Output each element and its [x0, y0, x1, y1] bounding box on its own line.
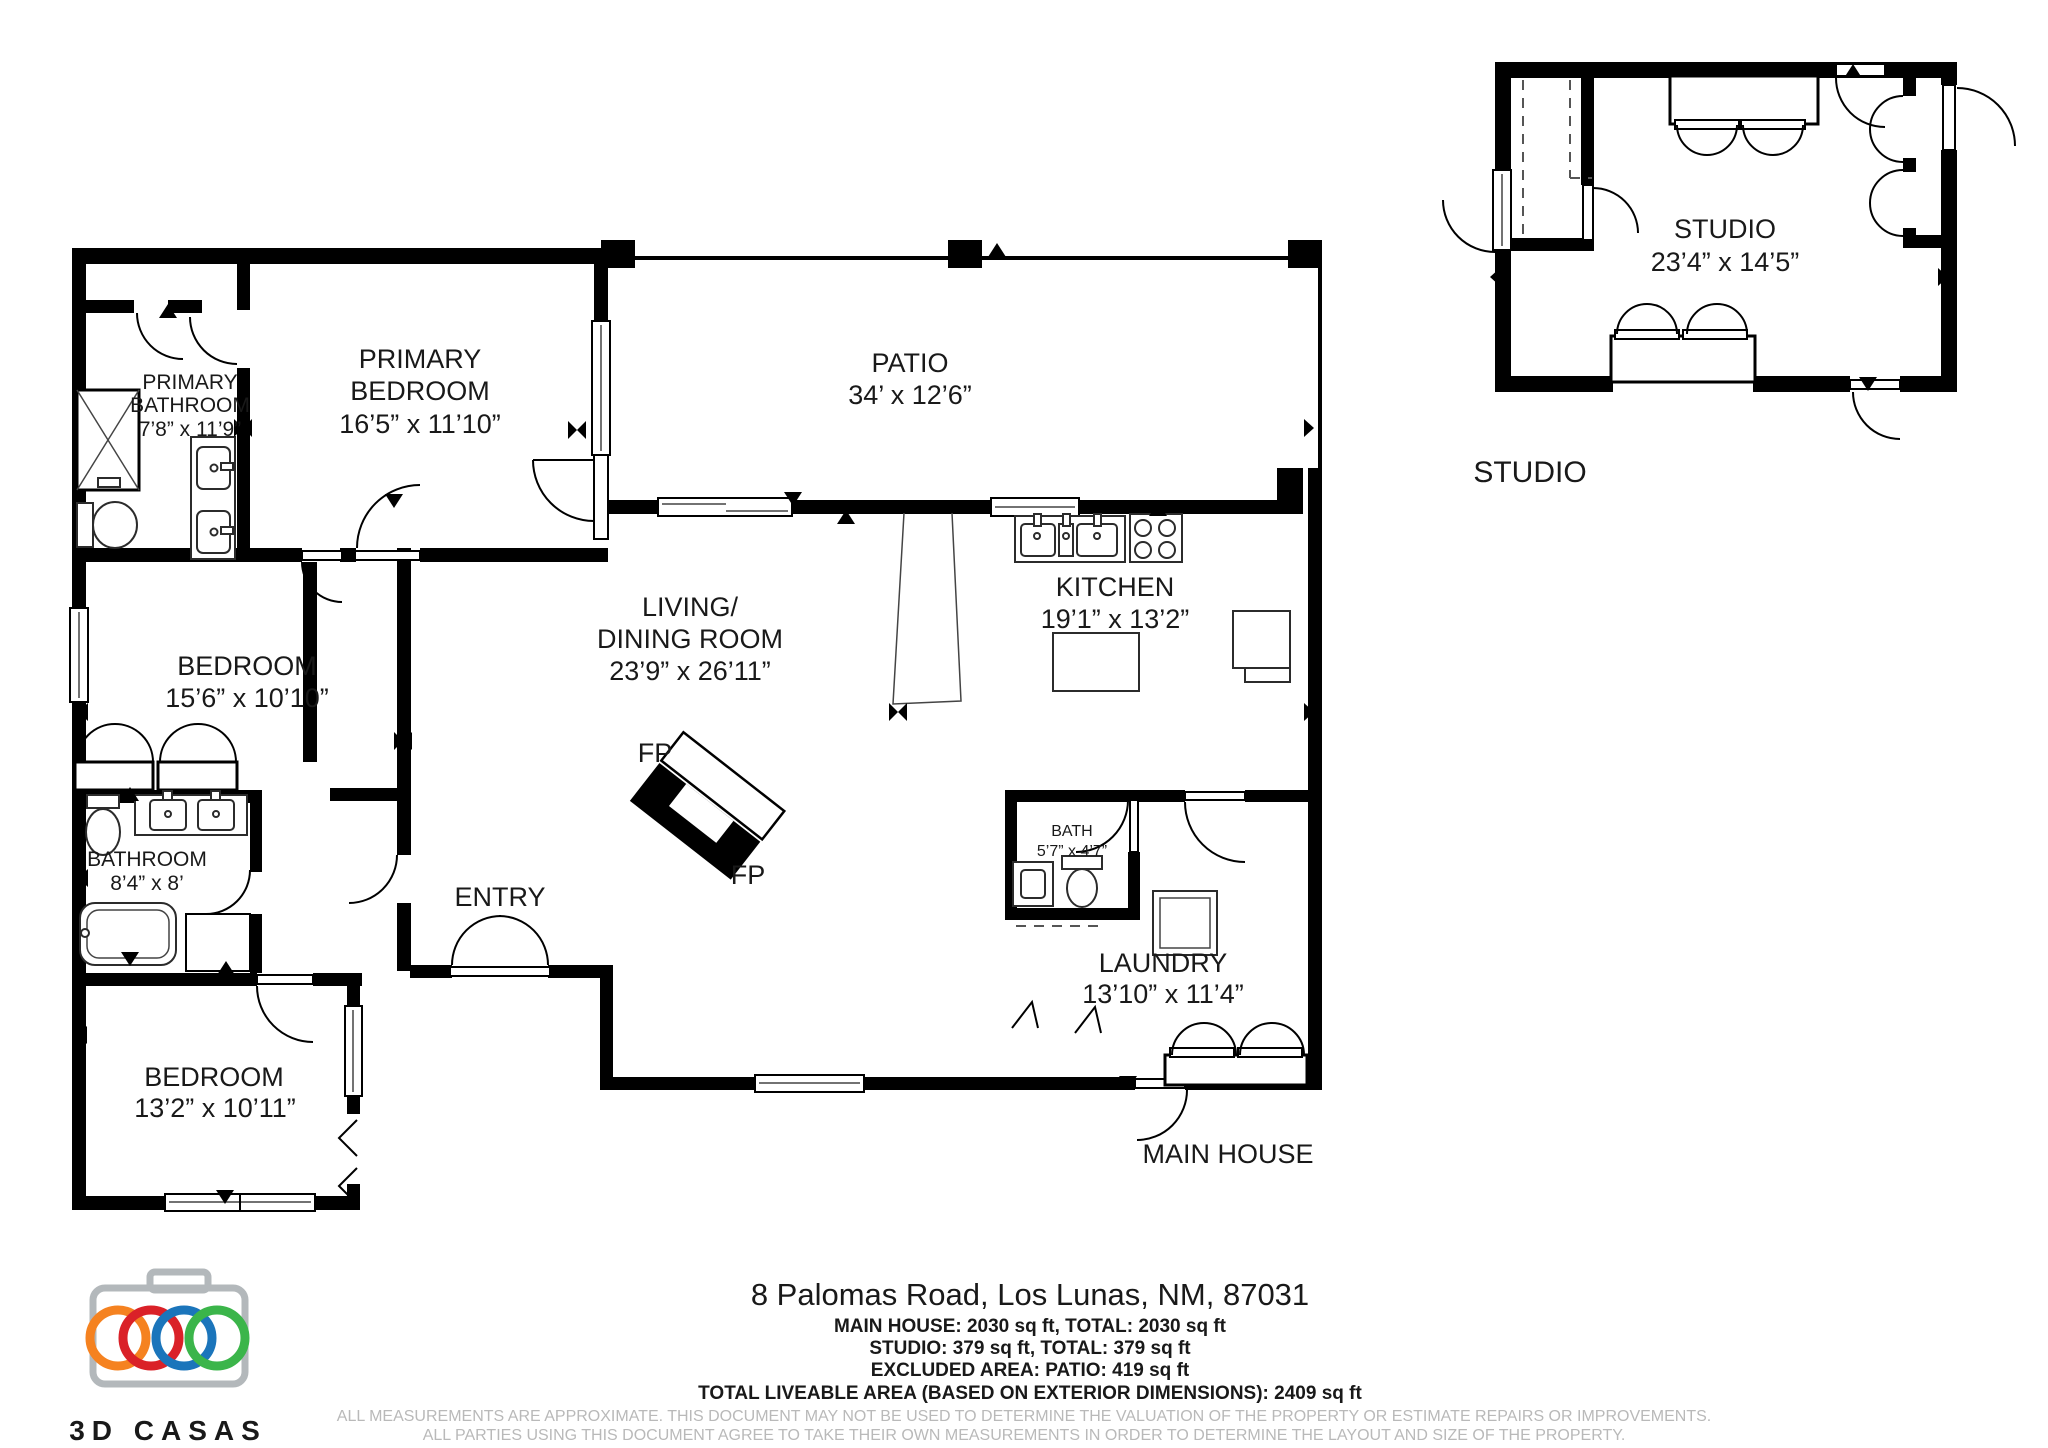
brand-wordmark: 3D CASAS — [69, 1415, 267, 1446]
label-kitchen: KITCHEN — [1056, 572, 1175, 602]
label-studio-room-dims: 23’4” x 14’5” — [1651, 247, 1800, 277]
label-patio-dims: 34’ x 12’6” — [848, 380, 972, 410]
summary-studio: STUDIO: 379 sq ft, TOTAL: 379 sq ft — [869, 1338, 1191, 1359]
caption-main-house: MAIN HOUSE — [1142, 1139, 1313, 1169]
label-fp-1: FP — [638, 738, 673, 768]
label-bedroom-south-dims: 13’2” x 10’11” — [134, 1093, 296, 1123]
label-primary-bathroom-2: BATHROOM — [130, 394, 250, 417]
label-patio: PATIO — [871, 348, 948, 378]
label-bedroom-south: BEDROOM — [144, 1062, 284, 1092]
disclaimer-line-1: ALL MEASUREMENTS ARE APPROXIMATE. THIS D… — [337, 1408, 1711, 1425]
label-entry: ENTRY — [454, 882, 545, 912]
label-bath: BATH — [1051, 823, 1092, 840]
label-fp-2: FP — [731, 860, 766, 890]
label-primary-bedroom-dims: 16’5” x 11’10” — [339, 409, 501, 439]
floor-plan-page: PRIMARY BATHROOM 7’8” x 11’9” PRIMARY BE… — [0, 0, 2048, 1448]
camera-icon — [90, 1272, 245, 1384]
property-address: 8 Palomas Road, Los Lunas, NM, 87031 — [751, 1277, 1309, 1312]
footer: 8 Palomas Road, Los Lunas, NM, 87031 MAI… — [337, 1277, 1711, 1444]
room-labels: PRIMARY BATHROOM 7’8” x 11’9” PRIMARY BE… — [87, 214, 1799, 1169]
logo: 3D CASAS — [69, 1272, 267, 1446]
caption-studio: STUDIO — [1473, 456, 1586, 489]
label-bath-dims: 5’7” x 4’7” — [1037, 843, 1107, 860]
label-living-1: LIVING/ — [642, 592, 739, 622]
label-laundry-dims: 13’10” x 11’4” — [1082, 979, 1244, 1009]
label-bedroom-west: BEDROOM — [177, 651, 317, 681]
label-bathroom: BATHROOM — [87, 848, 207, 871]
floor-plan-drawing: PRIMARY BATHROOM 7’8” x 11’9” PRIMARY BE… — [0, 0, 2048, 1448]
summary-total-liveable: TOTAL LIVEABLE AREA (BASED ON EXTERIOR D… — [698, 1383, 1362, 1404]
label-primary-bedroom-1: PRIMARY — [359, 344, 482, 374]
label-kitchen-dims: 19’1” x 13’2” — [1041, 604, 1190, 634]
disclaimer-line-2: ALL PARTIES USING THIS DOCUMENT AGREE TO… — [423, 1427, 1626, 1444]
label-studio-room: STUDIO — [1674, 214, 1776, 244]
label-living-dims: 23’9” x 26’11” — [609, 656, 771, 686]
label-primary-bathroom-dims: 7’8” x 11’9” — [139, 418, 241, 441]
label-laundry: LAUNDRY — [1099, 948, 1228, 978]
label-primary-bedroom-2: BEDROOM — [350, 376, 490, 406]
label-bathroom-dims: 8’4” x 8’ — [110, 872, 184, 895]
summary-main-house: MAIN HOUSE: 2030 sq ft, TOTAL: 2030 sq f… — [834, 1316, 1227, 1337]
ring-green-icon — [189, 1310, 245, 1366]
label-living-2: DINING ROOM — [597, 624, 783, 654]
direction-markers — [77, 243, 1314, 1204]
summary-excluded: EXCLUDED AREA: PATIO: 419 sq ft — [871, 1360, 1190, 1381]
label-bedroom-west-dims: 15’6” x 10’10” — [165, 683, 329, 713]
label-primary-bathroom-1: PRIMARY — [142, 371, 237, 394]
